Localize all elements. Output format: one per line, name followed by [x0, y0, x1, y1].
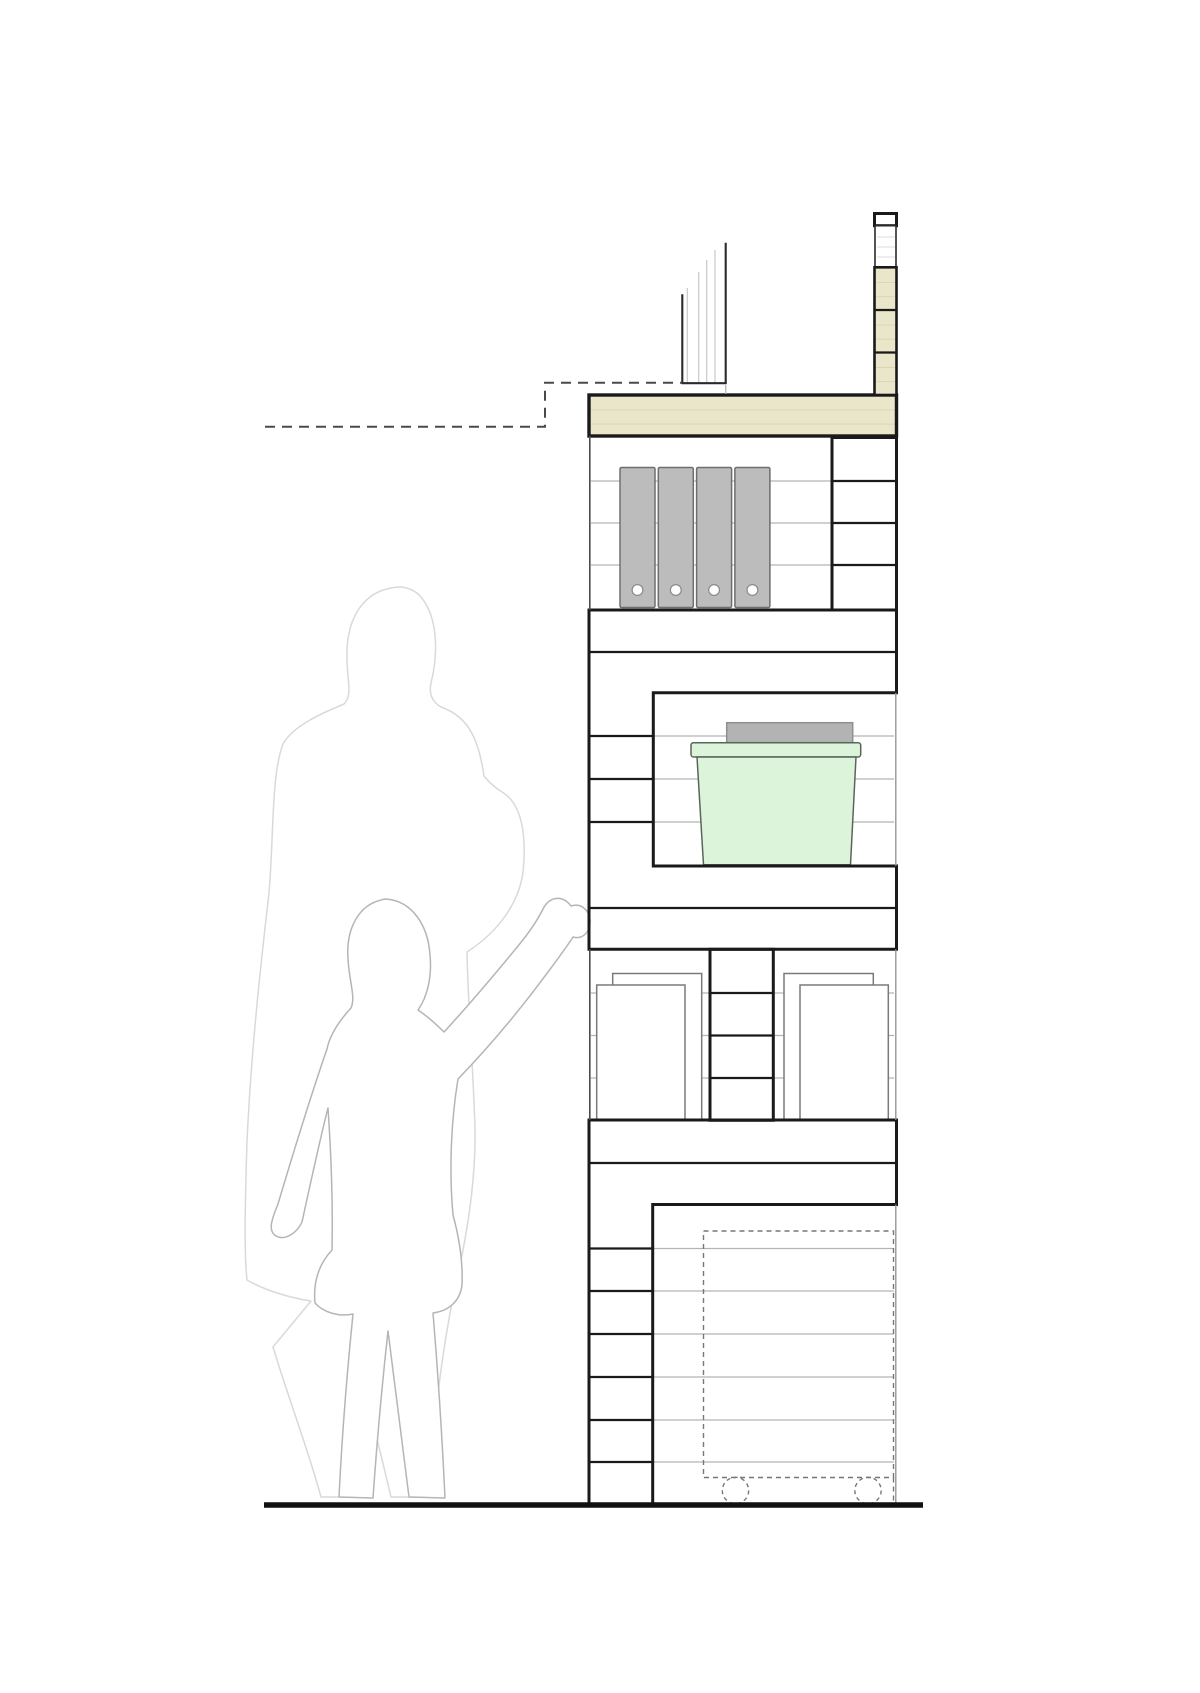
binder-ring-hole — [709, 585, 720, 596]
roof-slab — [589, 395, 897, 436]
binder-ring-hole — [747, 585, 758, 596]
parapet-cap — [875, 214, 897, 226]
lower-shelf-and-left-wall — [589, 1120, 897, 1505]
section-drawing — [0, 0, 1200, 1693]
storage-bin-rim — [691, 743, 861, 757]
binders — [620, 468, 770, 608]
storage-bin-body — [697, 757, 856, 865]
storage-bin-group — [691, 723, 861, 865]
storage-box — [800, 985, 888, 1121]
storage-bin-lid — [727, 723, 853, 743]
parapet-wall — [875, 267, 897, 395]
storage-boxes — [597, 974, 889, 1121]
roof-railing — [681, 243, 726, 394]
cart-wheel — [855, 1477, 881, 1503]
cart-wheel — [722, 1477, 748, 1503]
binder-ring-hole — [670, 585, 681, 596]
storage-box — [597, 985, 685, 1121]
cart-dashed-outline — [704, 1231, 894, 1478]
cladding-lines — [591, 481, 894, 1462]
binder-ring-hole — [632, 585, 643, 596]
section-drawing-page — [0, 0, 1200, 1693]
rolling-cart — [704, 1231, 894, 1504]
scale-figures — [245, 587, 590, 1498]
